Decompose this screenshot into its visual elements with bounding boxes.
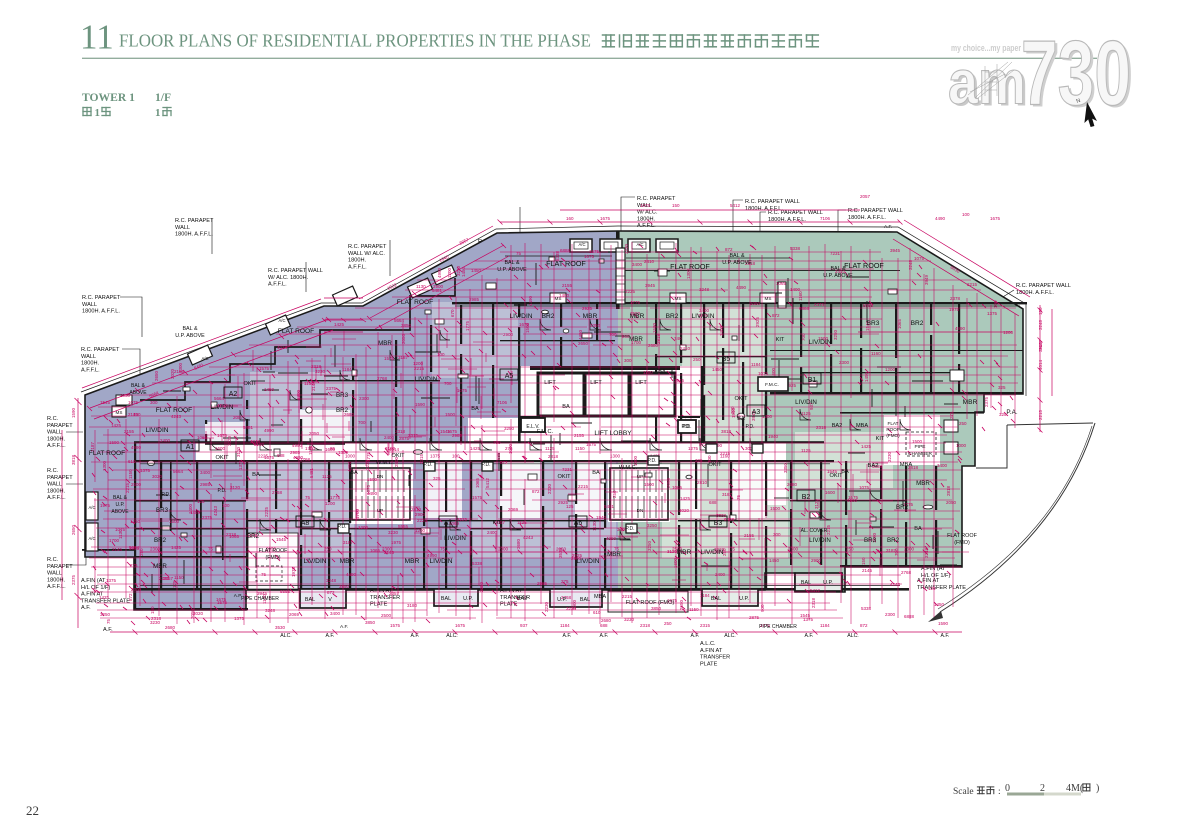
svg-text:75: 75 xyxy=(208,547,214,552)
svg-text:A3: A3 xyxy=(752,409,761,416)
svg-text:2300: 2300 xyxy=(150,547,161,552)
svg-text:PIPE: PIPE xyxy=(915,444,926,450)
svg-text:1590: 1590 xyxy=(109,440,120,445)
svg-text:1590: 1590 xyxy=(652,322,657,333)
svg-text:75: 75 xyxy=(516,251,522,256)
svg-text:872: 872 xyxy=(500,460,508,465)
svg-text:2300: 2300 xyxy=(359,396,370,401)
svg-text:3230: 3230 xyxy=(624,243,629,254)
svg-text:2318: 2318 xyxy=(548,454,559,459)
svg-text:MBA: MBA xyxy=(856,423,868,429)
svg-text:1775: 1775 xyxy=(465,320,470,331)
svg-text:FLAT ROOF: FLAT ROOF xyxy=(259,548,288,554)
svg-text:700: 700 xyxy=(444,381,452,386)
svg-text:300: 300 xyxy=(730,406,735,414)
svg-text:1450: 1450 xyxy=(264,387,275,392)
svg-text:2650: 2650 xyxy=(71,524,76,535)
svg-text:2300: 2300 xyxy=(904,547,915,552)
svg-text:LIV/DIN: LIV/DIN xyxy=(700,549,723,556)
svg-text:3350: 3350 xyxy=(783,462,788,473)
svg-text:MBR: MBR xyxy=(963,399,978,406)
svg-text:1575: 1575 xyxy=(384,356,395,361)
svg-text:3230: 3230 xyxy=(887,451,892,462)
svg-text:2050: 2050 xyxy=(750,301,761,306)
svg-text:LIV/DIN: LIV/DIN xyxy=(576,558,599,565)
svg-text:1700: 1700 xyxy=(355,508,360,519)
svg-text:OKIT: OKIT xyxy=(391,453,405,459)
svg-text:1590: 1590 xyxy=(415,402,426,407)
svg-text:2768: 2768 xyxy=(272,490,283,495)
svg-text:150: 150 xyxy=(861,557,866,565)
svg-text:250: 250 xyxy=(959,421,967,426)
svg-text:BAL: BAL xyxy=(441,596,451,602)
svg-text:3187: 3187 xyxy=(398,355,409,360)
svg-text:1590: 1590 xyxy=(938,621,949,626)
svg-text:U.P.: U.P. xyxy=(823,580,833,586)
svg-text:2215: 2215 xyxy=(622,594,633,599)
svg-text:3020: 3020 xyxy=(227,435,232,446)
svg-text:1500: 1500 xyxy=(644,482,655,487)
svg-text:688: 688 xyxy=(709,500,717,505)
svg-text:BR3: BR3 xyxy=(864,537,877,544)
svg-text:FLAT ROOF: FLAT ROOF xyxy=(156,407,192,414)
svg-text:1575: 1575 xyxy=(259,366,270,371)
svg-text:3230: 3230 xyxy=(315,369,326,374)
svg-text:1000: 1000 xyxy=(572,599,577,610)
svg-text:75: 75 xyxy=(305,495,311,500)
svg-text:3230: 3230 xyxy=(388,530,399,535)
svg-text:2057: 2057 xyxy=(860,194,871,199)
svg-text:300: 300 xyxy=(773,532,781,537)
svg-text:1125: 1125 xyxy=(801,448,811,453)
svg-text:1600: 1600 xyxy=(825,490,836,495)
svg-text:5481: 5481 xyxy=(432,288,443,293)
svg-text:1675: 1675 xyxy=(990,216,1001,221)
svg-text:5555: 5555 xyxy=(280,589,291,594)
svg-text:MBR: MBR xyxy=(153,563,167,570)
svg-text:BAL: BAL xyxy=(801,580,811,586)
svg-text:700: 700 xyxy=(609,332,617,337)
svg-text:1450: 1450 xyxy=(769,558,780,563)
svg-text:1300: 1300 xyxy=(102,460,107,471)
svg-text:2925: 2925 xyxy=(582,306,593,311)
svg-text:3248: 3248 xyxy=(699,287,710,292)
svg-text:3400: 3400 xyxy=(937,463,948,468)
svg-text:FLAT ROOF: FLAT ROOF xyxy=(89,450,125,457)
svg-text:2985: 2985 xyxy=(537,581,548,586)
svg-text:5481: 5481 xyxy=(243,425,254,430)
svg-text:FLAT ROOF: FLAT ROOF xyxy=(844,261,884,270)
svg-text:A2: A2 xyxy=(229,391,238,398)
svg-text:75: 75 xyxy=(440,547,446,552)
svg-text:75: 75 xyxy=(730,547,736,552)
svg-text:OKIT: OKIT xyxy=(243,381,257,387)
svg-text:1075: 1075 xyxy=(758,371,769,376)
svg-text:3230: 3230 xyxy=(456,265,461,276)
svg-text:P.D.: P.D. xyxy=(745,424,754,430)
svg-text:5338: 5338 xyxy=(861,606,872,611)
svg-text:3250: 3250 xyxy=(100,612,111,617)
svg-text:5338: 5338 xyxy=(472,561,483,566)
svg-text:1160: 1160 xyxy=(643,370,653,375)
svg-text:3248: 3248 xyxy=(908,259,913,270)
svg-text:2300: 2300 xyxy=(382,547,393,552)
svg-text:2500: 2500 xyxy=(381,613,392,618)
svg-text:1200: 1200 xyxy=(358,525,369,530)
svg-text:2375: 2375 xyxy=(984,396,989,407)
svg-text:FLAT ROOF: FLAT ROOF xyxy=(947,533,977,539)
svg-text:5555: 5555 xyxy=(398,524,409,529)
svg-text:ABOVE: ABOVE xyxy=(111,509,129,515)
svg-text:1125: 1125 xyxy=(517,520,527,525)
svg-text:1000: 1000 xyxy=(345,454,356,459)
svg-text:1575: 1575 xyxy=(472,495,483,500)
svg-text:1975: 1975 xyxy=(100,503,111,508)
svg-text:1160: 1160 xyxy=(871,351,881,356)
svg-text:1425: 1425 xyxy=(334,322,345,327)
svg-text:3400: 3400 xyxy=(200,470,211,475)
svg-text:2145: 2145 xyxy=(128,412,139,417)
svg-text:100: 100 xyxy=(962,212,970,217)
svg-text:BR2: BR2 xyxy=(887,537,900,544)
svg-text:100: 100 xyxy=(452,454,460,459)
svg-text:1545: 1545 xyxy=(800,613,811,618)
svg-text:LIV/DIN: LIV/DIN xyxy=(795,399,817,406)
svg-text:2145: 2145 xyxy=(862,568,873,573)
svg-text:75: 75 xyxy=(106,618,111,624)
svg-text:3850: 3850 xyxy=(651,606,662,611)
svg-text:1450: 1450 xyxy=(130,519,141,524)
svg-text:2400: 2400 xyxy=(160,438,171,443)
svg-text:2900: 2900 xyxy=(503,332,514,337)
svg-text:2925: 2925 xyxy=(558,500,569,505)
svg-text:FLAT ROOF (FMO): FLAT ROOF (FMO) xyxy=(626,600,675,606)
svg-text:KIT: KIT xyxy=(876,436,885,442)
svg-text:2155: 2155 xyxy=(174,369,185,374)
svg-text:4014: 4014 xyxy=(1038,359,1043,370)
svg-text:3248: 3248 xyxy=(326,578,337,583)
svg-text:2650: 2650 xyxy=(578,341,589,346)
svg-text:300: 300 xyxy=(150,400,158,405)
svg-text:2215: 2215 xyxy=(578,484,589,489)
svg-text:5555: 5555 xyxy=(863,303,874,308)
svg-text:U.P. ABOVE: U.P. ABOVE xyxy=(823,273,853,279)
svg-text:1500: 1500 xyxy=(169,519,180,524)
svg-text:6888: 6888 xyxy=(904,614,915,619)
svg-text:2900: 2900 xyxy=(811,558,822,563)
svg-text:BA: BA xyxy=(658,369,666,375)
svg-text:4490: 4490 xyxy=(367,491,378,496)
svg-text:B2: B2 xyxy=(802,494,811,501)
svg-text:6888: 6888 xyxy=(799,306,810,311)
svg-text:2300: 2300 xyxy=(839,360,850,365)
svg-text:1200: 1200 xyxy=(415,528,426,533)
svg-text:3945: 3945 xyxy=(645,283,656,288)
svg-text:LIV/DIN: LIV/DIN xyxy=(429,558,452,565)
svg-text:1500: 1500 xyxy=(770,506,781,511)
svg-text:MBR: MBR xyxy=(916,480,930,487)
svg-text:3850: 3850 xyxy=(339,584,350,589)
svg-text:2155: 2155 xyxy=(562,283,573,288)
svg-text:1675: 1675 xyxy=(216,597,227,602)
svg-text:670: 670 xyxy=(450,309,455,317)
svg-text:P.D.: P.D. xyxy=(337,524,346,530)
svg-text:LIFT: LIFT xyxy=(590,380,602,386)
svg-text:3250: 3250 xyxy=(833,329,838,340)
svg-text:E.L.V.: E.L.V. xyxy=(526,424,539,430)
svg-text:BA: BA xyxy=(737,416,745,422)
svg-text:1425: 1425 xyxy=(680,496,691,501)
svg-text:MBR: MBR xyxy=(630,313,645,320)
svg-text:3818: 3818 xyxy=(250,439,261,444)
svg-text:A6: A6 xyxy=(574,520,583,527)
svg-text:1425: 1425 xyxy=(111,423,122,428)
svg-text:1675: 1675 xyxy=(600,216,611,221)
svg-text:3020: 3020 xyxy=(193,611,204,616)
svg-text:100: 100 xyxy=(222,503,230,508)
svg-text:BAL &: BAL & xyxy=(113,495,128,501)
svg-text:LIV/DIN: LIV/DIN xyxy=(509,313,532,320)
svg-text:U.P. ABOVE: U.P. ABOVE xyxy=(497,267,527,273)
svg-text:CHAMBER: CHAMBER xyxy=(908,451,933,457)
svg-text:1675: 1675 xyxy=(455,623,466,628)
svg-text:1775: 1775 xyxy=(630,300,641,305)
svg-text:125: 125 xyxy=(928,586,936,591)
svg-text:4490: 4490 xyxy=(578,329,583,340)
svg-text:P.D.: P.D. xyxy=(681,424,690,430)
svg-text:1275: 1275 xyxy=(688,446,699,451)
svg-text:1375: 1375 xyxy=(140,468,151,473)
svg-text:2375: 2375 xyxy=(202,515,213,520)
svg-text:1575: 1575 xyxy=(390,623,401,628)
svg-text:1775: 1775 xyxy=(330,495,341,500)
svg-text:1375: 1375 xyxy=(430,454,441,459)
svg-text:700: 700 xyxy=(493,440,501,445)
svg-text:2318: 2318 xyxy=(816,425,827,430)
svg-text:ABOVE: ABOVE xyxy=(129,390,147,396)
svg-text:A7: A7 xyxy=(444,520,453,527)
svg-text:2215: 2215 xyxy=(967,282,978,287)
svg-text:OKIT: OKIT xyxy=(215,455,229,461)
svg-text:1975: 1975 xyxy=(391,540,402,545)
svg-text:610: 610 xyxy=(128,459,136,464)
svg-text:3020: 3020 xyxy=(679,508,690,513)
svg-text:2810: 2810 xyxy=(697,480,708,485)
svg-text:2375: 2375 xyxy=(71,574,76,585)
svg-text:688: 688 xyxy=(496,452,501,460)
svg-text:6888: 6888 xyxy=(560,248,571,253)
svg-text:2925: 2925 xyxy=(755,316,760,327)
svg-text:900: 900 xyxy=(760,604,765,612)
svg-text:2300: 2300 xyxy=(885,612,896,617)
svg-text:BAL: BAL xyxy=(711,596,721,602)
svg-text:MBR: MBR xyxy=(340,558,355,565)
svg-text:MBR: MBR xyxy=(677,549,692,556)
svg-text:MS: MS xyxy=(765,296,772,301)
svg-text:610: 610 xyxy=(593,610,601,615)
svg-text:1675: 1675 xyxy=(447,429,458,434)
svg-text:872: 872 xyxy=(772,313,780,318)
svg-text:1590: 1590 xyxy=(71,407,76,418)
svg-text:150: 150 xyxy=(672,203,680,208)
svg-text:2050: 2050 xyxy=(401,333,406,344)
svg-text:150: 150 xyxy=(150,606,155,614)
svg-text:1075: 1075 xyxy=(128,400,139,405)
svg-text:325: 325 xyxy=(433,476,441,481)
svg-text:4490: 4490 xyxy=(346,572,357,577)
svg-text:3230: 3230 xyxy=(624,617,635,622)
svg-text:3850: 3850 xyxy=(365,620,376,625)
svg-text:4990: 4990 xyxy=(264,428,275,433)
svg-text:2500: 2500 xyxy=(131,482,142,487)
svg-text:3187: 3187 xyxy=(1038,339,1043,350)
svg-text:MBA: MBA xyxy=(594,594,606,600)
svg-text:3248: 3248 xyxy=(265,608,276,613)
svg-text:ROOF: ROOF xyxy=(886,427,899,432)
svg-text:1425: 1425 xyxy=(470,446,481,451)
svg-text:BR3: BR3 xyxy=(156,507,169,514)
svg-text:U.P.: U.P. xyxy=(463,596,473,602)
svg-text:2230: 2230 xyxy=(544,601,549,612)
svg-text:3400: 3400 xyxy=(330,611,341,616)
svg-text:BR3: BR3 xyxy=(867,320,880,327)
svg-text:DN: DN xyxy=(377,474,384,479)
svg-text:MBR: MBR xyxy=(629,336,643,343)
svg-text:1160: 1160 xyxy=(798,291,803,301)
svg-text:2410: 2410 xyxy=(644,259,655,264)
svg-text:2315: 2315 xyxy=(700,623,711,628)
svg-text:F.M.C.: F.M.C. xyxy=(765,382,779,388)
svg-text:MBA: MBA xyxy=(900,462,913,468)
svg-text:P.D.: P.D. xyxy=(161,492,170,498)
svg-text:2680: 2680 xyxy=(787,482,798,487)
svg-text:3180: 3180 xyxy=(407,603,418,608)
svg-text:4490: 4490 xyxy=(528,295,533,306)
svg-text:FLAT ROOF: FLAT ROOF xyxy=(546,259,586,268)
svg-text:2225: 2225 xyxy=(457,517,468,522)
svg-text:MBR: MBR xyxy=(583,313,598,320)
svg-text:1200: 1200 xyxy=(447,267,452,278)
svg-text:1200: 1200 xyxy=(1003,330,1014,335)
svg-text:BAL: BAL xyxy=(580,597,590,603)
svg-text:2985: 2985 xyxy=(469,297,480,302)
svg-text:LIV/DIN: LIV/DIN xyxy=(444,535,466,542)
svg-text:2318: 2318 xyxy=(151,616,162,621)
svg-text:1160: 1160 xyxy=(720,454,730,459)
svg-text:1975: 1975 xyxy=(949,307,960,312)
svg-text:3818: 3818 xyxy=(721,429,732,434)
svg-text:1940: 1940 xyxy=(596,515,607,520)
svg-text:PIPE CHAMBER: PIPE CHAMBER xyxy=(759,624,797,630)
svg-text:3400: 3400 xyxy=(719,325,724,336)
svg-text:2225: 2225 xyxy=(264,506,269,517)
svg-text:3250: 3250 xyxy=(647,540,652,551)
svg-text:5338: 5338 xyxy=(790,246,801,251)
svg-text:P.D.: P.D. xyxy=(625,526,634,532)
svg-text:1065: 1065 xyxy=(229,534,240,539)
svg-text:7231: 7231 xyxy=(562,467,573,472)
svg-text:LIV/DIN: LIV/DIN xyxy=(145,427,168,434)
svg-text:4243: 4243 xyxy=(213,505,218,516)
svg-text:250: 250 xyxy=(846,547,854,552)
svg-text:BR2: BR2 xyxy=(896,504,909,511)
svg-text:2768: 2768 xyxy=(377,376,388,381)
svg-text:275: 275 xyxy=(561,579,569,584)
svg-text:5664: 5664 xyxy=(214,396,225,401)
svg-text:BA: BA xyxy=(841,469,849,475)
svg-text:P.A.: P.A. xyxy=(1006,409,1017,416)
svg-text:BR2: BR2 xyxy=(336,407,349,414)
svg-text:1200: 1200 xyxy=(885,367,896,372)
svg-text:275: 275 xyxy=(130,563,138,568)
svg-text:LIV/DIN: LIV/DIN xyxy=(809,537,831,544)
svg-text:MBR: MBR xyxy=(607,551,621,558)
svg-text:1130: 1130 xyxy=(416,284,426,289)
svg-text:A/C: A/C xyxy=(279,318,286,323)
svg-text:LIV/DIN: LIV/DIN xyxy=(691,313,714,320)
svg-text:300: 300 xyxy=(624,358,632,363)
svg-text:4990: 4990 xyxy=(847,498,858,503)
svg-text:5412: 5412 xyxy=(730,203,741,208)
svg-text:1450: 1450 xyxy=(864,371,869,382)
svg-text:1375: 1375 xyxy=(987,311,998,316)
svg-text:1545: 1545 xyxy=(276,537,287,542)
svg-text:1125: 1125 xyxy=(801,411,811,416)
svg-text:U.P.: U.P. xyxy=(115,502,124,508)
svg-text:B5: B5 xyxy=(722,356,731,363)
svg-text:MBR: MBR xyxy=(378,340,392,347)
svg-text:700: 700 xyxy=(358,420,366,425)
svg-text:BAL &: BAL & xyxy=(182,326,197,332)
svg-text:1425: 1425 xyxy=(171,545,182,550)
svg-text:W.M.C.: W.M.C. xyxy=(376,460,395,466)
svg-text:BR3: BR3 xyxy=(336,392,349,399)
svg-text:1450: 1450 xyxy=(934,602,945,607)
svg-text:FLAT ROOF: FLAT ROOF xyxy=(278,328,314,335)
svg-text:3020: 3020 xyxy=(152,474,163,479)
svg-text:872: 872 xyxy=(532,489,540,494)
svg-text:1545: 1545 xyxy=(100,400,111,405)
svg-text:FLAT ROOF: FLAT ROOF xyxy=(397,299,433,306)
svg-text:2318: 2318 xyxy=(395,429,406,434)
svg-text:5664: 5664 xyxy=(173,469,184,474)
svg-text:1065: 1065 xyxy=(776,281,787,286)
svg-text:(FMO): (FMO) xyxy=(266,555,281,561)
svg-text:3187: 3187 xyxy=(343,540,354,545)
svg-text:3250: 3250 xyxy=(504,426,515,431)
svg-text:275: 275 xyxy=(505,446,513,451)
svg-text:1075: 1075 xyxy=(914,256,925,261)
svg-text:AL. COVER: AL. COVER xyxy=(801,528,828,534)
svg-text:3120: 3120 xyxy=(230,485,241,490)
svg-text:2400: 2400 xyxy=(715,572,726,577)
svg-text:2768: 2768 xyxy=(901,570,912,575)
svg-text:1450: 1450 xyxy=(461,266,466,277)
svg-text:3230: 3230 xyxy=(365,459,370,470)
svg-text:2300: 2300 xyxy=(788,547,799,552)
svg-text:250: 250 xyxy=(612,490,617,498)
svg-text:V: V xyxy=(328,597,332,603)
svg-text:B1: B1 xyxy=(808,377,817,384)
svg-text:B3: B3 xyxy=(714,520,723,527)
svg-text:P.D.: P.D. xyxy=(423,462,432,468)
svg-text:BA: BA xyxy=(914,526,922,532)
svg-text:BR2: BR2 xyxy=(542,313,555,320)
svg-text:A5: A5 xyxy=(505,373,514,380)
svg-text:2410: 2410 xyxy=(680,346,691,351)
svg-text:2225: 2225 xyxy=(258,454,269,459)
svg-text:4490: 4490 xyxy=(736,285,747,290)
